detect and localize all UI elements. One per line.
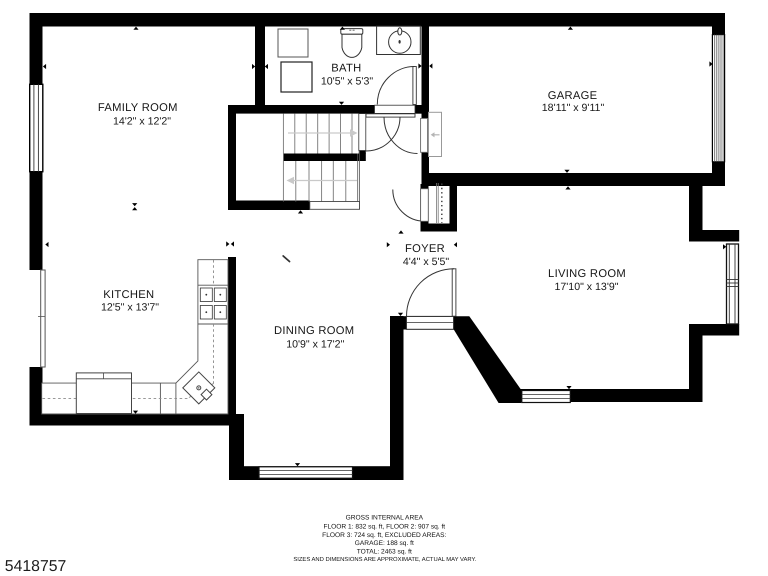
svg-text:14'2" x 12'2": 14'2" x 12'2" [113, 115, 171, 127]
svg-text:LIVING ROOM: LIVING ROOM [548, 268, 626, 280]
svg-text:18'11" x 9'11": 18'11" x 9'11" [542, 102, 605, 114]
svg-text:4'4" x 5'5": 4'4" x 5'5" [403, 256, 450, 268]
svg-text:10'9" x 17'2": 10'9" x 17'2" [286, 339, 344, 351]
svg-text:FAMILY ROOM: FAMILY ROOM [98, 102, 178, 114]
svg-text:GARAGE: GARAGE [548, 90, 598, 102]
svg-text:5418757: 5418757 [5, 558, 67, 575]
svg-text:10'5" x 5'3": 10'5" x 5'3" [321, 76, 373, 88]
svg-text:KITCHEN: KITCHEN [103, 289, 154, 301]
svg-text:FOYER: FOYER [405, 243, 445, 255]
svg-text:DINING ROOM: DINING ROOM [274, 325, 354, 337]
svg-text:FLOOR 1: 832 sq. ft, FLOOR 2:: FLOOR 1: 832 sq. ft, FLOOR 2: 907 sq. ft [323, 524, 445, 531]
svg-text:GARAGE: 188 sq. ft: GARAGE: 188 sq. ft [355, 540, 414, 547]
svg-text:TOTAL: 2463 sq. ft: TOTAL: 2463 sq. ft [357, 548, 412, 555]
svg-text:17'10" x 13'9": 17'10" x 13'9" [555, 281, 619, 293]
svg-text:GROSS INTERNAL AREA: GROSS INTERNAL AREA [346, 515, 424, 522]
svg-text:12'5" x 13'7": 12'5" x 13'7" [101, 301, 159, 313]
svg-text:SIZES AND DIMENSIONS ARE APPRO: SIZES AND DIMENSIONS ARE APPROXIMATE, AC… [293, 556, 476, 563]
svg-text:FLOOR 3: 724 sq. ft, EXCLUDED: FLOOR 3: 724 sq. ft, EXCLUDED AREAS: [322, 532, 446, 539]
svg-text:BATH: BATH [331, 63, 361, 75]
